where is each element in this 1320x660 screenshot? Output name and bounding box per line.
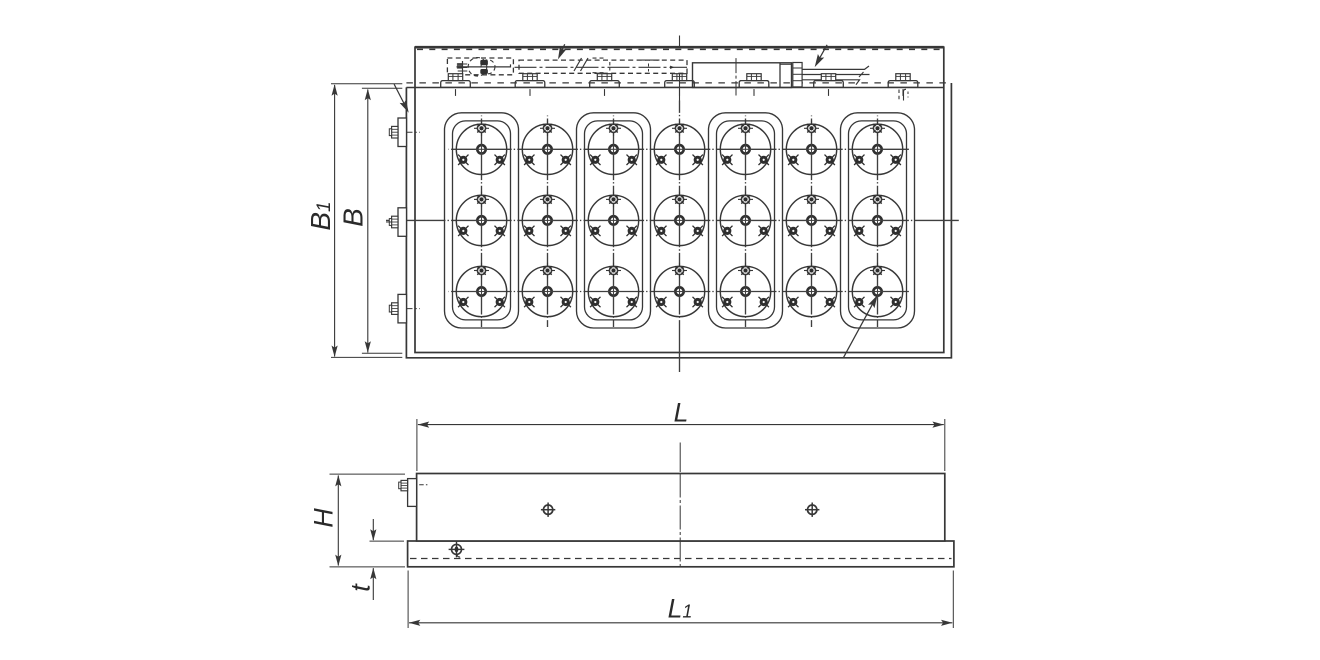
svg-text:B: B	[338, 208, 369, 227]
svg-text:H: H	[309, 508, 339, 528]
svg-text:L: L	[674, 397, 689, 427]
